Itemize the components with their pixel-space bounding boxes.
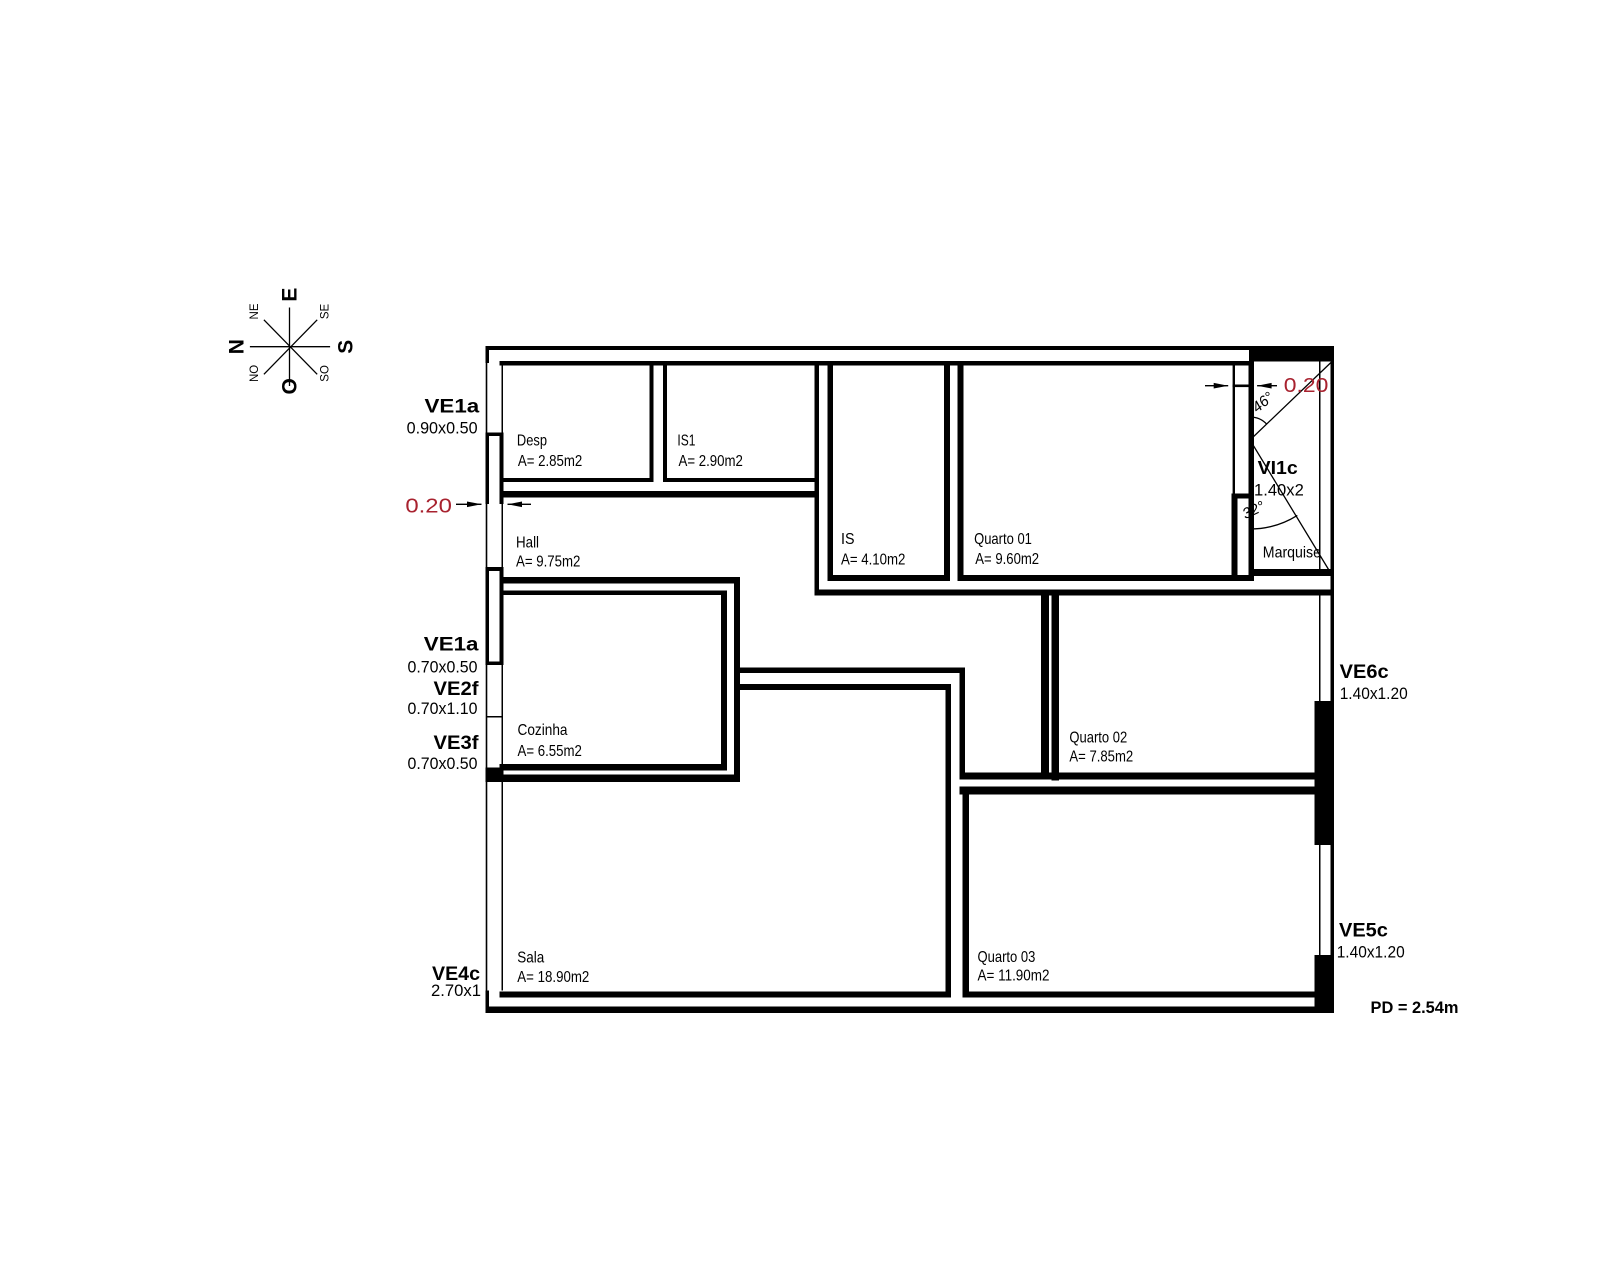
svg-text:VE5c: VE5c [1339,921,1388,942]
svg-text:A= 18.90m2: A= 18.90m2 [517,969,589,986]
svg-text:Desp: Desp [517,433,547,450]
svg-text:Quarto 03: Quarto 03 [978,949,1036,966]
svg-text:A= 11.90m2: A= 11.90m2 [978,968,1050,985]
svg-text:SE: SE [319,304,331,320]
svg-text:VI1c: VI1c [1258,458,1298,478]
svg-text:IS: IS [841,531,855,548]
svg-text:NO: NO [249,365,261,382]
svg-text:A= 2.85m2: A= 2.85m2 [518,453,582,470]
svg-text:Hall: Hall [516,535,539,552]
svg-text:1.40x1.20: 1.40x1.20 [1337,944,1405,962]
svg-text:E: E [279,288,302,302]
svg-text:0.70x1.10: 0.70x1.10 [408,700,478,718]
svg-text:VE3f: VE3f [434,733,480,754]
svg-text:A= 4.10m2: A= 4.10m2 [841,551,905,568]
svg-text:N: N [226,339,249,354]
svg-text:NE: NE [249,303,261,319]
svg-text:Quarto 02: Quarto 02 [1069,730,1127,747]
svg-text:O: O [279,378,302,394]
svg-text:A= 9.75m2: A= 9.75m2 [516,554,580,571]
svg-text:S: S [335,340,358,354]
svg-text:Sala: Sala [517,949,544,966]
svg-text:PD = 2.54m: PD = 2.54m [1371,999,1459,1017]
svg-text:VE1a: VE1a [424,635,479,656]
svg-text:SO: SO [319,365,331,382]
svg-text:Marquise: Marquise [1263,545,1321,562]
svg-text:0.90x0.50: 0.90x0.50 [407,420,478,438]
svg-text:0.20: 0.20 [405,496,452,518]
svg-text:Quarto 01: Quarto 01 [974,531,1032,548]
svg-text:0.70x0.50: 0.70x0.50 [408,755,478,773]
svg-text:2.70x1: 2.70x1 [431,982,481,1000]
svg-text:A= 7.85m2: A= 7.85m2 [1069,748,1133,765]
svg-text:VE1a: VE1a [425,396,480,417]
svg-text:1.40x1.20: 1.40x1.20 [1340,685,1408,703]
svg-text:A= 6.55m2: A= 6.55m2 [518,743,582,760]
svg-text:0.20: 0.20 [1284,375,1329,397]
svg-text:VE6c: VE6c [1340,662,1389,683]
svg-text:A= 2.90m2: A= 2.90m2 [679,453,743,470]
svg-text:1.40x2: 1.40x2 [1254,482,1304,500]
svg-text:VE2f: VE2f [434,679,480,700]
svg-text:Cozinha: Cozinha [518,722,568,739]
svg-text:0.70x0.50: 0.70x0.50 [408,659,478,677]
svg-text:A= 9.60m2: A= 9.60m2 [975,551,1039,568]
svg-text:IS1: IS1 [677,433,695,450]
